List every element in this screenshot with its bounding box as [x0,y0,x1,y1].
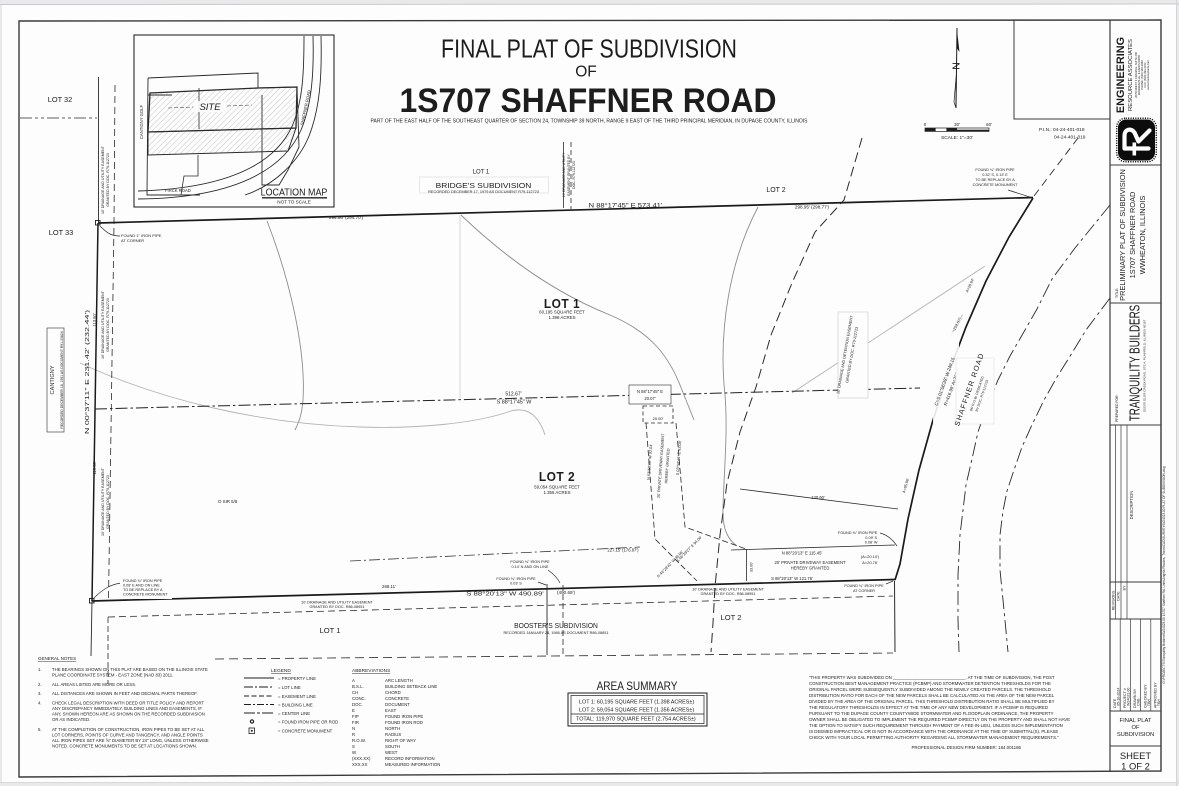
svg-text:33.00': 33.00' [750,562,754,573]
svg-text:(490.69'): (490.69') [557,590,575,595]
svg-text:0.32' S, 0.13' E: 0.32' S, 0.13' E [982,173,1008,177]
svg-text:LOT 2: LOT 2 [539,470,575,485]
svg-text:FOUND IRON PIPE: FOUND IRON PIPE [385,714,423,719]
svg-text:GRANTED BY DOC. R79-112723: GRANTED BY DOC. R79-112723 [106,475,110,529]
svg-text:= EASEMENT LINE: = EASEMENT LINE [278,694,316,699]
svg-text:DIVIDED BY THE AREA OF THE ORI: DIVIDED BY THE AREA OF THE ORIGINAL PARC… [809,699,1055,704]
svg-text:1S707 SHAFFNER ROAD: 1S707 SHAFFNER ROAD [1128,192,1137,279]
svg-text:59,054 SQUARE FEET: 59,054 SQUARE FEET [534,485,580,490]
svg-text:1.398 ACRES: 1.398 ACRES [548,315,575,320]
svg-text:60,195 SQUARE FEET: 60,195 SQUARE FEET [539,310,585,315]
svg-text:EASEMENT GRANTED BY: EASEMENT GRANTED BY [567,153,571,195]
svg-text:20' PRIVATE DRIVEWAY EASEMENT: 20' PRIVATE DRIVEWAY EASEMENT [774,560,846,565]
svg-text:N: N [951,62,963,70]
svg-text:CHECK LEGAL DESCRIPTION WITH D: CHECK LEGAL DESCRIPTION WITH DEED OR TIT… [52,701,205,706]
svg-text:= FOUND IRON PIPE OR ROD: = FOUND IRON PIPE OR ROD [278,720,338,725]
svg-text:OR AS INDICATED.: OR AS INDICATED. [52,717,90,722]
svg-text:= PROPERTY LINE: = PROPERTY LINE [278,676,316,681]
svg-text:N 88°20'13" E 115.45': N 88°20'13" E 115.45' [782,551,823,556]
svg-text:GENERAL NOTES: GENERAL NOTES [38,656,76,661]
svg-text:ALL AREAS LISTED ARE MORE OR L: ALL AREAS LISTED ARE MORE OR LESS. [52,682,136,687]
svg-text:: W24023.00: : W24023.00 [1127,688,1131,708]
svg-text:FOUND ⅜" IRON PIPE: FOUND ⅜" IRON PIPE [510,560,550,564]
svg-text:5.: 5. [38,727,42,732]
svg-text:LOT CORNERS, POINTS OF CURVE A: LOT CORNERS, POINTS OF CURVE AND TANGENC… [52,733,203,738]
svg-text:PRELIMINARY PLAT OF SUBDIVISIO: PRELIMINARY PLAT OF SUBDIVISION [1118,169,1127,301]
svg-text:10' DRAINAGE AND UTILITY EASEM: 10' DRAINAGE AND UTILITY EASEMENT [101,145,105,214]
svg-text:0.03' S: 0.03' S [510,582,522,586]
svg-text:DOCUMENT: DOCUMENT [385,702,410,707]
svg-text:O SIR 5/8: O SIR 5/8 [218,499,238,504]
svg-text:N 88°17'45" E 573.41': N 88°17'45" E 573.41' [589,202,663,209]
svg-text:FINAL PLAT: FINAL PLAT [1120,718,1152,724]
svg-text:AT THE COMPLETION OF CONSTRUCT: AT THE COMPLETION OF CONSTRUCTION, IRON … [52,727,205,732]
svg-text:LOT 2: LOT 2 [721,613,742,622]
svg-text:: TBH: : TBH [1157,698,1161,708]
svg-text:RADIUS: RADIUS [385,732,401,737]
svg-text:ARC LENGTH: ARC LENGTH [385,678,413,683]
svg-text:TOTAL: 119,970 SQUARE FEET (2.: TOTAL: 119,970 SQUARE FEET (2.754 ACRES±… [576,717,696,723]
svg-text:ALL DISTANCES ARE SHOWN IN FEE: ALL DISTANCES ARE SHOWN IN FEET AND DECI… [52,691,198,696]
svg-text:FOUND ⅜" IRON PIPE: FOUND ⅜" IRON PIPE [496,577,536,581]
svg-text:BRIDGE'S SUBDIVISION: BRIDGE'S SUBDIVISION [436,182,532,190]
svg-text:268.11': 268.11' [382,584,396,589]
svg-text:= LOT LINE: = LOT LINE [278,685,301,690]
svg-text:113.50': 113.50' [92,313,97,326]
svg-text:20.00': 20.00' [653,416,664,421]
svg-text:AT CORNER: AT CORNER [853,589,875,593]
svg-text:OF: OF [575,64,597,81]
svg-text:IS DEEMED IMPRACTICAL OR IS NO: IS DEEMED IMPRACTICAL OR IS NOT IN ACCOR… [809,729,1058,734]
svg-text:B.S.L.: B.S.L. [352,684,364,689]
svg-text:FOUND ⅜" IRON PIPE: FOUND ⅜" IRON PIPE [838,531,878,535]
svg-text:116.30': 116.30' [92,461,97,474]
svg-text:DOC.: DOC. [352,702,363,707]
svg-text:1S707 SHAFFNER ROAD: 1S707 SHAFFNER ROAD [400,81,777,119]
svg-text:GRANTED BY DOC. R79-112723: GRANTED BY DOC. R79-112723 [106,153,110,207]
svg-text:LOCATION MAP: LOCATION MAP [261,187,328,199]
svg-text:1.356 ACRES: 1.356 ACRES [543,490,570,495]
svg-text:S: S [352,744,355,749]
svg-text:ABBREVIATIONS: ABBREVIATIONS [352,668,390,674]
svg-text:RECORDED DECEMBER 18, 1991 AS: RECORDED DECEMBER 18, 1991 AS DOCUMENT R… [60,331,64,428]
svg-text:0.08' W: 0.08' W [865,540,878,544]
svg-text:= CENTER LINE: = CENTER LINE [278,711,310,716]
svg-text:FOUND ¾" IRON PIPE: FOUND ¾" IRON PIPE [975,168,1015,172]
svg-text:LOT 1: LOT 1 [473,170,490,176]
svg-text:SOUTH: SOUTH [385,744,400,749]
svg-text:RECORDED DECEMBER 17, 1979 AS: RECORDED DECEMBER 17, 1979 AS DOCUMENT R… [428,190,539,194]
svg-text:PLANE COORDINATE SYSTEM - EAST: PLANE COORDINATE SYSTEM - EAST ZONE (NAD… [52,673,173,678]
svg-text:ORIGINAL PARCEL WERE SUBSEQUEN: ORIGINAL PARCEL WERE SUBSEQUENTLY SUBDIV… [809,687,1051,692]
svg-text:FOUND IRON ROD: FOUND IRON ROD [385,720,423,725]
svg-text:: TBH: : TBH [1147,698,1151,708]
svg-text:THE OPTION TO SATISFY SUCH REQ: THE OPTION TO SATISFY SUCH REQUIREMENT T… [809,723,1063,728]
svg-text:RIGHT OF WAY: RIGHT OF WAY [385,738,416,743]
svg-text:AREA SUMMARY: AREA SUMMARY [597,680,678,693]
svg-text:CANTIGNY GOLF: CANTIGNY GOLF [139,105,144,140]
svg-text:DESCRIPTION: DESCRIPTION [1129,491,1134,520]
svg-text:AT CORNER: AT CORNER [121,238,144,243]
svg-text:CONCRETE: CONCRETE [385,696,409,701]
svg-text:ALL IRON PIPES SET ARE ⅝" DIAM: ALL IRON PIPES SET ARE ⅝" DIAMETER BY 24… [52,738,209,743]
svg-text:(XXX.XX): (XXX.XX) [352,756,371,761]
svg-text:130.60': 130.60' [811,495,825,500]
svg-text:"THIS PROPERTY WAS SUBDIVIDED: "THIS PROPERTY WAS SUBDIVIDED ON _______… [809,675,1055,680]
svg-text:227.15' (176.87'): 227.15' (176.87') [607,548,639,553]
svg-text:0.08' E AND ON LINE: 0.08' E AND ON LINE [123,584,160,588]
svg-text:ANY, SHOWN HEREON ARE AS SHOWN: ANY, SHOWN HEREON ARE AS SHOWN ON THE RE… [52,712,205,717]
svg-text:GRANTED BY DOC. R86-08951: GRANTED BY DOC. R86-08951 [700,592,755,596]
svg-text:30': 30' [954,122,960,127]
svg-text:SUBDIVISION: SUBDIVISION [1117,732,1154,738]
svg-text:LOT 1: 60,195 SQUARE FEET (1.: LOT 1: 60,195 SQUARE FEET (1.398 ACRES±) [579,700,694,706]
svg-text:A=20.76': A=20.76' [862,560,878,565]
svg-text:CONCRETE MONUMENT: CONCRETE MONUMENT [123,593,168,597]
svg-text:PART OF THE EAST HALF OF THE S: PART OF THE EAST HALF OF THE SOUTHEAST Q… [371,118,808,124]
svg-text:10' DRAINAGE AND UTILITY: 10' DRAINAGE AND UTILITY [562,152,566,197]
svg-text:DISTRIBUTION RATIO FOR EACH OF: DISTRIBUTION RATIO FOR EACH OF THE NEW P… [809,693,1055,698]
svg-text:www.eraconsultants.com: www.eraconsultants.com [1146,59,1150,89]
svg-text:1.: 1. [38,667,42,672]
svg-text:LOT 2: LOT 2 [766,187,785,194]
svg-text:DATE: DATE [1117,591,1121,601]
svg-text:SHEET: SHEET [1120,750,1152,761]
svg-text:SITE: SITE [199,102,221,113]
svg-text:60': 60' [986,122,992,127]
svg-text:R.O.W.: R.O.W. [352,738,366,743]
svg-text:P.I.N.: 04-24-401-018: P.I.N.: 04-24-401-018 [1039,127,1085,133]
svg-text:: 05-10-2024: : 05-10-2024 [1117,688,1121,708]
svg-text:RESOURCE ASSOCIATES: RESOURCE ASSOCIATES [1128,39,1134,111]
svg-text:THE REGULATORY THRESHOLDS IN E: THE REGULATORY THRESHOLDS IN EFFECT AT T… [809,705,1048,710]
svg-text:OWNER SHALL BE OBLIGATED TO IM: OWNER SHALL BE OBLIGATED TO IMPLEMENT TH… [809,717,1070,722]
svg-text:DOC. R79-112723: DOC. R79-112723 [572,161,576,189]
svg-text:10' DRAINAGE AND UTILITY EASEM: 10' DRAINAGE AND UTILITY EASEMENT [101,467,105,536]
svg-text:FIP: FIP [352,714,359,719]
svg-text:WEST: WEST [385,750,398,755]
svg-text:PROFESSIONAL DESIGN FIRM NUMBE: PROFESSIONAL DESIGN FIRM NUMBER: 184.001… [911,745,1021,750]
svg-text:ENGINEERING: ENGINEERING [1115,37,1127,113]
svg-text:(A=20.10'): (A=20.10') [861,554,880,559]
svg-text:CHORD: CHORD [385,690,401,695]
svg-text:CONCRETE MONUMENT: CONCRETE MONUMENT [973,183,1018,187]
svg-text:S 88°20'13" W 490.89': S 88°20'13" W 490.89' [466,591,544,597]
svg-text:S 88°20'13" W 121.76': S 88°20'13" W 121.76' [771,576,813,581]
svg-text:0.14' N AND ON LINE: 0.14' N AND ON LINE [511,565,548,569]
svg-text:LOT 2: 59,054 SQUARE FEET (1.: LOT 2: 59,054 SQUARE FEET (1.356 ACRES±) [579,708,694,714]
svg-text:RECORD INFORMATION: RECORD INFORMATION [385,756,435,761]
svg-text:1 OF 2: 1 OF 2 [1121,761,1150,772]
svg-text:OF: OF [1131,725,1140,731]
svg-text:CANTIGNY: CANTIGNY [50,365,56,394]
svg-text:10' DRAINAGE AND UTILITY EASEM: 10' DRAINAGE AND UTILITY EASEMENT [301,601,373,605]
svg-text:G:\PROJECTS\Tranquility Builde: G:\PROJECTS\Tranquility Builders\W24023.… [1162,466,1166,683]
svg-text:N: N [352,726,355,731]
svg-text:CONC.: CONC. [352,696,366,701]
svg-text:NOT TO SCALE: NOT TO SCALE [277,200,310,205]
svg-text:FOUND ¾" IRON PIPE: FOUND ¾" IRON PIPE [844,584,884,588]
svg-text:TO BE REPLACE BY A: TO BE REPLACE BY A [975,178,1015,182]
svg-text:4.: 4. [38,701,42,706]
svg-text:FIRCK ROAD: FIRCK ROAD [165,188,191,193]
svg-text:EAST: EAST [385,708,397,713]
svg-text:TO BE REPLACE BY A: TO BE REPLACE BY A [123,588,163,592]
svg-text:ANY DISCREPANCY IMMEDIATELY. B: ANY DISCREPANCY IMMEDIATELY. BUILDING LI… [52,706,202,711]
svg-text:FIR: FIR [352,720,359,725]
svg-text:10' DRAINAGE AND UTILITY EASEM: 10' DRAINAGE AND UTILITY EASEMENT [692,588,764,592]
svg-text:= BUILDING LINE: = BUILDING LINE [278,703,313,708]
svg-text:: CNB: : CNB [1137,698,1141,708]
svg-text:NORTH: NORTH [385,726,400,731]
svg-text:S 88°17'45" W: S 88°17'45" W [497,400,533,406]
svg-text:BUILDING SETBACK LINE: BUILDING SETBACK LINE [385,684,437,689]
svg-text:A: A [352,678,355,683]
svg-text:2.: 2. [38,682,42,687]
svg-text:E: E [352,708,355,713]
svg-text:WWHEATON, ILLINOIS: WWHEATON, ILLINOIS [1138,196,1147,275]
svg-text:FINAL PLAT OF SUBDIVISION: FINAL PLAT OF SUBDIVISION [441,35,737,65]
svg-text:LOT 32: LOT 32 [48,95,73,104]
svg-text:FOUND ¾" IRON PIPE: FOUND ¾" IRON PIPE [123,579,163,583]
svg-text:10S370 GLOR CREEK ROAD, STE A,: 10S370 GLOR CREEK ROAD, STE A, PLAINFIEL… [1143,319,1147,412]
svg-text:LOT 1: LOT 1 [320,626,341,635]
svg-text:LEGEND: LEGEND [271,668,291,674]
svg-text:THE BEARINGS SHOWN ON THIS PLA: THE BEARINGS SHOWN ON THIS PLAT ARE BASE… [52,667,208,672]
svg-text:R: R [352,732,355,737]
svg-text:LOT 33: LOT 33 [49,228,74,237]
svg-text:CONSTRUCTION BEST MANAGEMENT P: CONSTRUCTION BEST MANAGEMENT PRACTICE (P… [809,681,1051,686]
svg-text:PURSUANT TO THE DUPAGE COUNTY: PURSUANT TO THE DUPAGE COUNTY COUNTYWIDE… [809,711,1054,716]
svg-text:= CONCRETE MONUMENT: = CONCRETE MONUMENT [278,729,333,734]
svg-text:BY: BY [1123,585,1127,590]
svg-text:0.09' S: 0.09' S [865,536,877,540]
svg-text:MEASURED INFORMATION: MEASURED INFORMATION [385,762,440,767]
svg-text:XXX.XX: XXX.XX [352,762,368,767]
svg-text:512.67': 512.67' [505,392,521,398]
svg-text:PREPARED FOR:: PREPARED FOR: [1115,394,1119,422]
svg-text:GRANTED BY DOC. R79-112723: GRANTED BY DOC. R79-112723 [106,298,110,352]
svg-text:GRANTED BY DOC. R86-08951: GRANTED BY DOC. R86-08951 [309,605,364,609]
svg-text:298.95' (298.77'): 298.95' (298.77') [795,205,830,210]
svg-text:RECORDED JANUARY 28, 1986 AS D: RECORDED JANUARY 28, 1986 AS DOCUMENT R8… [504,631,609,635]
svg-text:CH: CH [352,690,358,695]
svg-text:NOTED. CONCRETE MONUMENTS TO B: NOTED. CONCRETE MONUMENTS TO BE SET AT L… [52,744,197,749]
svg-text:20.07': 20.07' [644,396,655,401]
svg-text:SCALE: 1"=30': SCALE: 1"=30' [941,135,973,141]
svg-text:04-24-401-019: 04-24-401-019 [1054,135,1086,141]
svg-text:BOOSTER'S SUBDIVISION: BOOSTER'S SUBDIVISION [514,623,598,630]
svg-text:N 00°37'11" E 231.42' (232.44: N 00°37'11" E 231.42' (232.44') [84,309,91,434]
svg-text:TRANQUILITY BUILDERS: TRANQUILITY BUILDERS [1126,305,1143,421]
svg-text:REVISIONS:: REVISIONS: [1112,590,1116,611]
svg-text:HEREBY GRANTED: HEREBY GRANTED [791,566,830,571]
svg-text:CHECK WITH YOUR LOCAL PERMITTI: CHECK WITH YOUR LOCAL PERMITTING AUTHORI… [809,735,1059,740]
svg-text:3.: 3. [38,691,42,696]
svg-text:10' DRAINAGE AND UTILITY EASEM: 10' DRAINAGE AND UTILITY EASEMENT [101,290,105,359]
svg-text:294.56' (294.70'): 294.56' (294.70') [329,215,364,220]
svg-text:N 88°17'45" E: N 88°17'45" E [637,389,663,394]
